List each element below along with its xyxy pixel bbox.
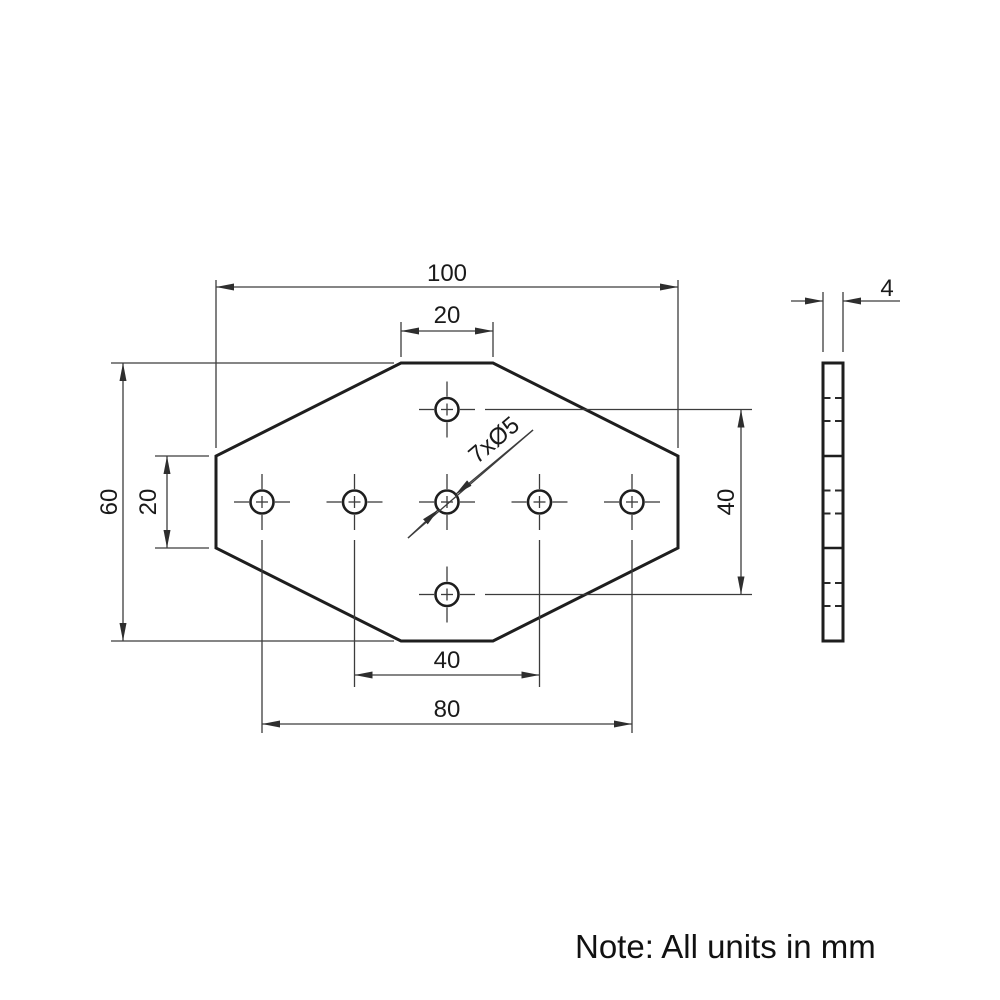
dim-side-flat-height-label: 20 — [135, 489, 162, 516]
dim-overall-width-label: 100 — [427, 260, 467, 287]
dimension-hole-span-vertical: 40 — [713, 410, 741, 595]
hole-top — [419, 382, 752, 438]
dim-overall-height-label: 60 — [96, 489, 123, 516]
dimension-side-flat-height: 20 — [135, 456, 209, 548]
front-view — [216, 363, 752, 733]
hole-right-inner — [512, 474, 568, 687]
hole-bottom — [419, 567, 752, 623]
dim-thickness-label: 4 — [880, 275, 893, 302]
dim-top-flat-width-label: 20 — [434, 302, 461, 329]
side-view-outline — [823, 363, 843, 641]
hole-left-outer — [234, 474, 290, 733]
drawing-svg: 100 20 60 20 40 40 80 7xØ5 — [0, 0, 1000, 1000]
dimension-thickness: 4 — [791, 275, 900, 352]
dim-hole-span-vertical-label: 40 — [713, 489, 740, 516]
dim-hole-span-inner-label: 40 — [434, 647, 461, 674]
dim-hole-span-outer-label: 80 — [434, 696, 461, 723]
engineering-drawing-canvas: 100 20 60 20 40 40 80 7xØ5 — [0, 0, 1000, 1000]
side-view — [823, 363, 843, 641]
hole-right-outer — [604, 474, 660, 733]
holes-callout: 7xØ5 — [408, 411, 533, 538]
units-note: Note: All units in mm — [575, 928, 876, 965]
dimension-hole-span-outer: 80 — [262, 696, 632, 724]
dimension-top-flat-width: 20 — [401, 302, 493, 357]
hole-left-inner — [327, 474, 383, 687]
dimension-hole-span-inner: 40 — [355, 647, 540, 675]
holes-callout-label: 7xØ5 — [464, 411, 525, 469]
